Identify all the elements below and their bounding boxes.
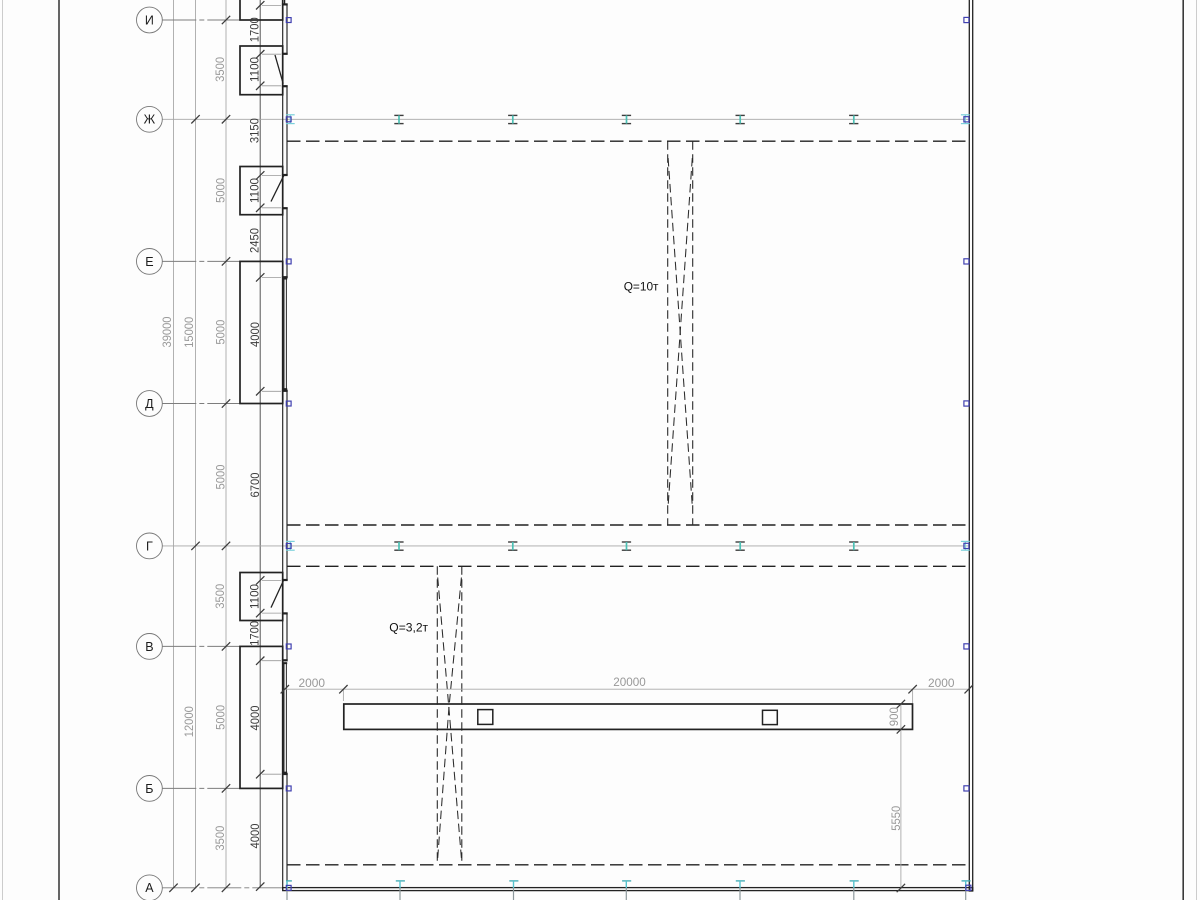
svg-text:5000: 5000 xyxy=(213,177,227,202)
svg-text:1100: 1100 xyxy=(248,178,262,203)
svg-text:12000: 12000 xyxy=(182,706,196,737)
svg-text:1700: 1700 xyxy=(248,620,262,645)
svg-text:Q=10т: Q=10т xyxy=(624,279,659,293)
svg-text:39000: 39000 xyxy=(160,316,174,347)
svg-text:6700: 6700 xyxy=(248,472,262,497)
svg-text:Б: Б xyxy=(145,782,153,796)
svg-text:5000: 5000 xyxy=(213,704,227,729)
svg-text:2000: 2000 xyxy=(928,676,955,690)
svg-text:1700: 1700 xyxy=(247,17,261,42)
svg-text:1100: 1100 xyxy=(248,584,262,609)
svg-text:20000: 20000 xyxy=(613,675,646,689)
svg-text:Д: Д xyxy=(145,397,154,411)
svg-text:В: В xyxy=(145,640,153,654)
svg-text:4000: 4000 xyxy=(248,823,262,848)
svg-text:900: 900 xyxy=(887,707,901,726)
svg-text:5000: 5000 xyxy=(213,464,227,489)
svg-text:Г: Г xyxy=(146,539,153,553)
svg-text:А: А xyxy=(145,881,154,895)
svg-text:И: И xyxy=(145,13,154,27)
svg-text:3500: 3500 xyxy=(213,583,227,608)
svg-text:3150: 3150 xyxy=(247,118,261,143)
svg-text:Q=3,2т: Q=3,2т xyxy=(389,620,428,634)
svg-text:1100: 1100 xyxy=(248,57,262,82)
svg-text:2450: 2450 xyxy=(248,228,262,253)
svg-text:5000: 5000 xyxy=(213,319,227,344)
svg-text:4000: 4000 xyxy=(248,322,262,347)
svg-text:5550: 5550 xyxy=(889,805,903,830)
svg-text:4000: 4000 xyxy=(248,705,262,730)
svg-text:3500: 3500 xyxy=(213,56,227,81)
svg-text:15000: 15000 xyxy=(182,316,196,347)
svg-text:Ж: Ж xyxy=(144,113,156,127)
svg-text:2000: 2000 xyxy=(299,676,326,690)
svg-text:Е: Е xyxy=(145,255,153,269)
svg-text:3500: 3500 xyxy=(213,825,227,850)
